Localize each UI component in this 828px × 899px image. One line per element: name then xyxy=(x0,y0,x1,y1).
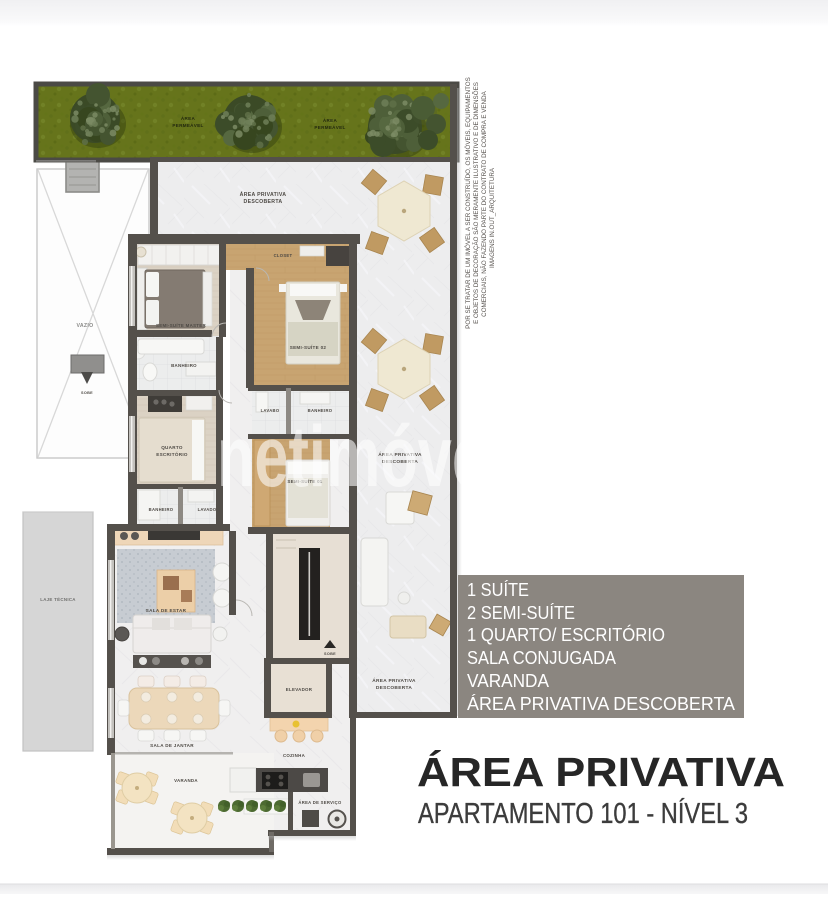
svg-text:ÁREA PRIVATIVA: ÁREA PRIVATIVA xyxy=(417,749,785,795)
svg-text:ÁREA PRIVATIVA: ÁREA PRIVATIVA xyxy=(240,191,287,198)
svg-text:VARANDA: VARANDA xyxy=(174,778,198,783)
svg-text:IMAGENS IN.OUT_ARQUITETURA: IMAGENS IN.OUT_ARQUITETURA xyxy=(489,167,496,268)
svg-text:PERMEÁVEL: PERMEÁVEL xyxy=(314,124,345,130)
svg-text:BANHEIRO: BANHEIRO xyxy=(149,507,174,512)
svg-text:E OBJETOS DE DECORAÇÃO SÃO MER: E OBJETOS DE DECORAÇÃO SÃO MERAMENTE ILU… xyxy=(473,82,480,324)
svg-text:ÁREA DE SERVIÇO: ÁREA DE SERVIÇO xyxy=(298,800,342,805)
svg-text:APARTAMENTO 101 - NÍVEL 3: APARTAMENTO 101 - NÍVEL 3 xyxy=(418,797,748,830)
svg-text:SOBE: SOBE xyxy=(324,652,336,656)
svg-text:SALA CONJUGADA: SALA CONJUGADA xyxy=(467,647,617,668)
svg-text:COZINHA: COZINHA xyxy=(283,753,306,758)
svg-text:SEMI-SUÍTE MASTER: SEMI-SUÍTE MASTER xyxy=(156,323,207,328)
svg-text:PERMEÁVEL: PERMEÁVEL xyxy=(172,122,203,128)
svg-text:LAJE TÉCNICA: LAJE TÉCNICA xyxy=(40,597,76,602)
svg-text:QUARTO: QUARTO xyxy=(161,445,183,450)
svg-text:ESCRITÓRIO: ESCRITÓRIO xyxy=(156,450,188,457)
svg-text:ÁREA: ÁREA xyxy=(181,115,196,121)
svg-text:DESCOBERTA: DESCOBERTA xyxy=(244,199,283,205)
svg-text:SALA DE ESTAR: SALA DE ESTAR xyxy=(146,608,187,613)
svg-text:VARANDA: VARANDA xyxy=(467,670,550,691)
svg-text:CLOSET: CLOSET xyxy=(274,253,293,258)
svg-text:POR SE TRATAR DE UM IMÓVEL A S: POR SE TRATAR DE UM IMÓVEL A SER CONSTRU… xyxy=(465,77,472,329)
svg-text:DESCOBERTA: DESCOBERTA xyxy=(376,685,412,691)
svg-text:ÁREA: ÁREA xyxy=(323,117,338,123)
svg-text:SEMI-SUÍTE 02: SEMI-SUÍTE 02 xyxy=(290,343,327,350)
svg-text:netimóveis: netimóveis xyxy=(217,409,537,505)
svg-text:1 QUARTO/ ESCRITÓRIO: 1 QUARTO/ ESCRITÓRIO xyxy=(467,624,665,645)
svg-text:ÁREA PRIVATIVA: ÁREA PRIVATIVA xyxy=(372,677,416,684)
svg-text:LAVADO: LAVADO xyxy=(198,507,217,512)
svg-text:2 SEMI-SUÍTE: 2 SEMI-SUÍTE xyxy=(467,602,575,623)
svg-text:SOBE: SOBE xyxy=(81,391,93,395)
svg-text:ÁREA PRIVATIVA DESCOBERTA: ÁREA PRIVATIVA DESCOBERTA xyxy=(467,693,736,714)
svg-text:COMERCIAIS, NÃO FAZENDO PARTE: COMERCIAIS, NÃO FAZENDO PARTE DO CONTRAT… xyxy=(481,90,488,316)
svg-text:BANHEIRO: BANHEIRO xyxy=(171,363,197,368)
svg-text:1 SUÍTE: 1 SUÍTE xyxy=(467,579,529,600)
svg-text:SALA DE JANTAR: SALA DE JANTAR xyxy=(150,743,194,748)
svg-text:VAZIO: VAZIO xyxy=(77,323,94,329)
svg-text:ELEVADOR: ELEVADOR xyxy=(286,687,313,692)
